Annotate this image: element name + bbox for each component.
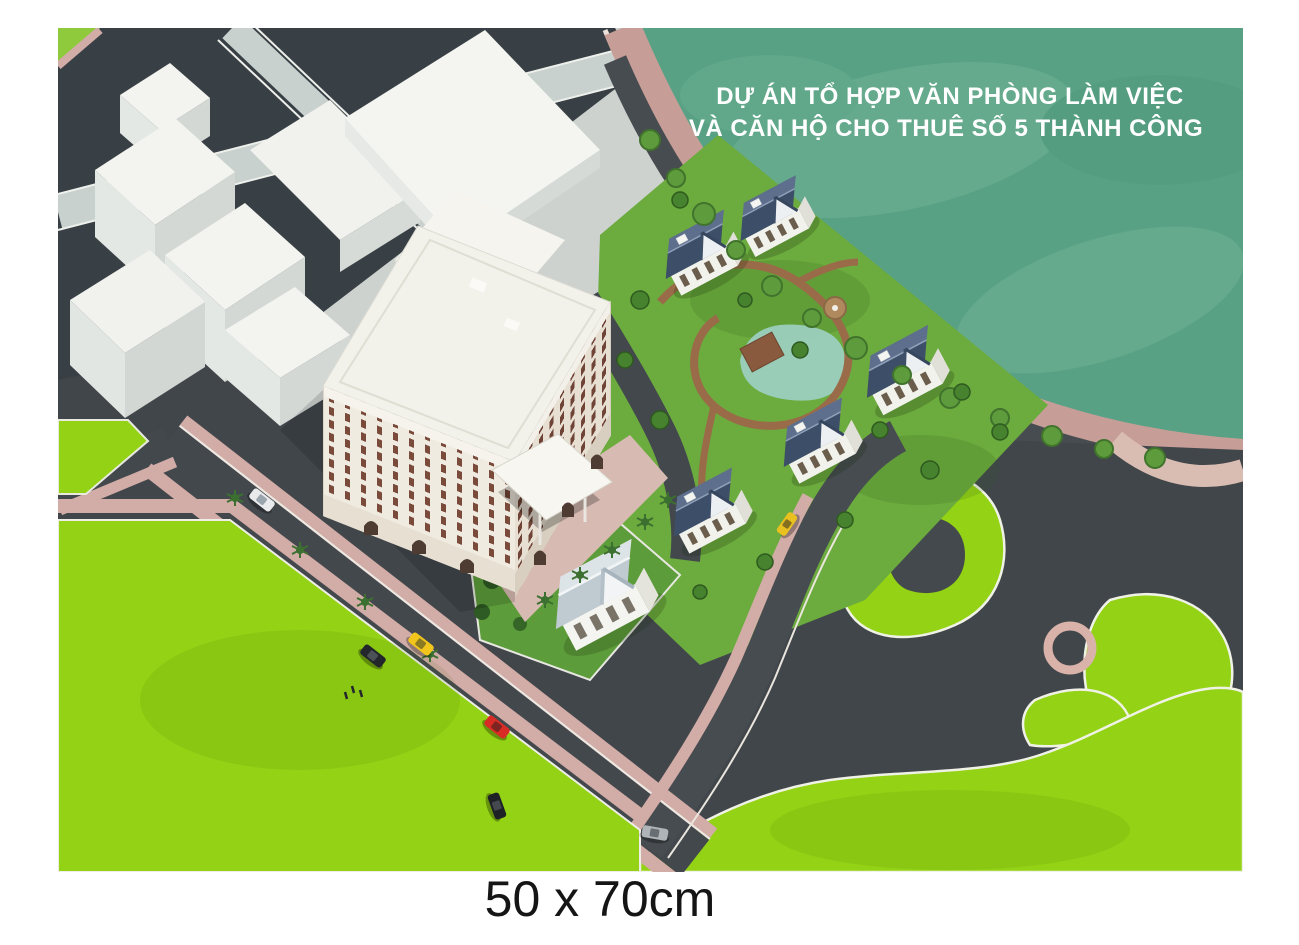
- project-poster: DỰ ÁN TỔ HỢP VĂN PHÒNG LÀM VIỆC VÀ CĂN H…: [0, 0, 1299, 945]
- car-gray: [638, 824, 670, 845]
- pedestrians: [345, 686, 362, 699]
- car-white: [244, 486, 277, 517]
- size-caption: 50 x 70cm: [485, 871, 716, 927]
- palm-trees: [227, 490, 676, 662]
- car-black-1: [355, 642, 388, 673]
- car-red: [479, 713, 512, 744]
- detail-overlay: DỰ ÁN TỔ HỢP VĂN PHÒNG LÀM VIỆC VÀ CĂN H…: [0, 0, 1299, 945]
- project-title-line-2: VÀ CĂN HỘ CHO THUÊ SỐ 5 THÀNH CÔNG: [689, 114, 1203, 142]
- taxi-yellow-2: [774, 509, 803, 541]
- promenade-trees: [640, 130, 1165, 468]
- project-title: DỰ ÁN TỔ HỢP VĂN PHÒNG LÀM VIỆC VÀ CĂN H…: [689, 82, 1203, 142]
- car-black-2: [482, 790, 507, 824]
- cars: [244, 486, 803, 845]
- project-title-line-1: DỰ ÁN TỔ HỢP VĂN PHÒNG LÀM VIỆC: [716, 82, 1183, 110]
- entrance-canopy: [492, 434, 612, 545]
